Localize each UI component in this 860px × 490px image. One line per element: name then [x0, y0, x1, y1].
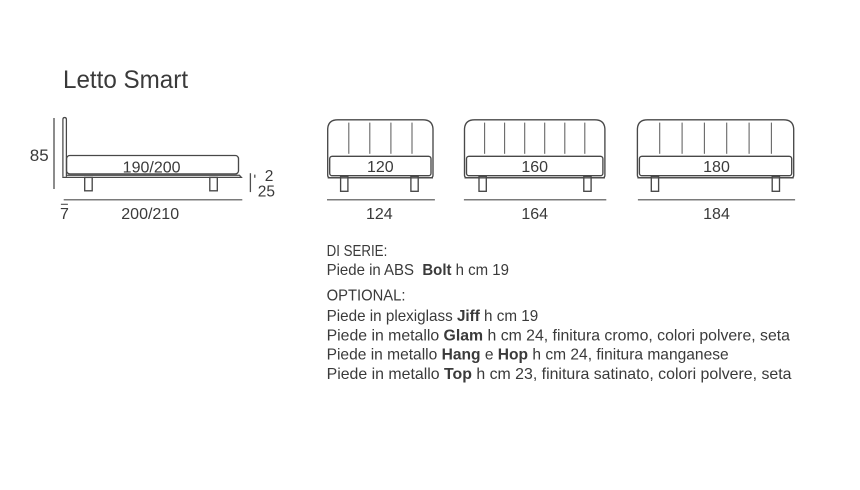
svg-text:124: 124	[366, 206, 393, 223]
svg-text:184: 184	[703, 206, 730, 223]
svg-text:7: 7	[60, 206, 69, 223]
svg-text:Letto Smart: Letto Smart	[63, 67, 188, 94]
svg-text:160: 160	[521, 159, 548, 176]
svg-text:DI SERIE:: DI SERIE:	[327, 243, 388, 260]
svg-text:164: 164	[521, 206, 548, 223]
svg-text:120: 120	[367, 159, 394, 176]
svg-text:190/200: 190/200	[123, 159, 181, 176]
svg-text:Piede in metallo Top h cm 23,: Piede in metallo Top h cm 23, finitura s…	[327, 366, 792, 383]
svg-text:25: 25	[258, 184, 275, 201]
svg-text:Piede in plexiglass Jiff h cm: Piede in plexiglass Jiff h cm 19	[327, 308, 539, 325]
svg-text:Piede in ABS Bolt h cm 19: Piede in ABS Bolt h cm 19	[327, 262, 509, 279]
svg-text:Piede in metallo Hang e Hop h: Piede in metallo Hang e Hop h cm 24, fin…	[327, 347, 729, 364]
svg-text:OPTIONAL:: OPTIONAL:	[327, 287, 406, 304]
svg-text:200/210: 200/210	[121, 206, 179, 223]
svg-text:180: 180	[703, 159, 730, 176]
svg-text:Piede in metallo Glam h cm 24,: Piede in metallo Glam h cm 24, finitura …	[327, 328, 791, 345]
svg-text:85: 85	[30, 146, 49, 165]
